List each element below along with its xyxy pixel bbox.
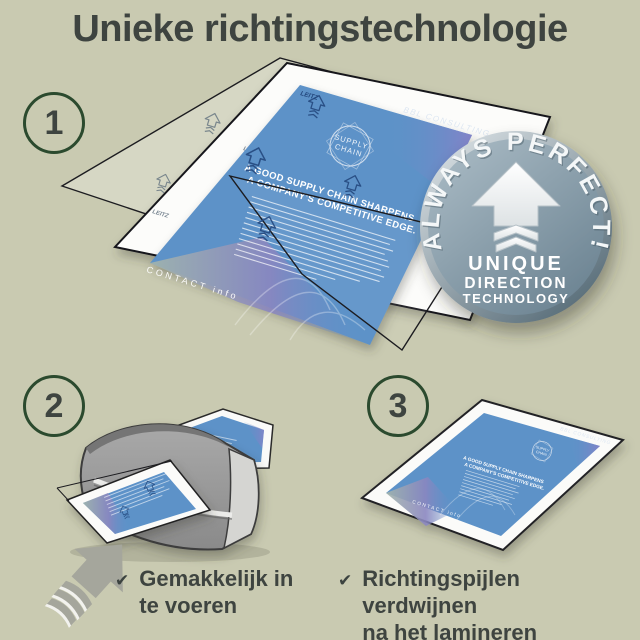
step-3-number: 3 <box>389 387 408 426</box>
caption-step2-line1: Gemakkelijk in <box>139 565 293 592</box>
step-2-circle: 2 <box>23 375 85 437</box>
checkmark-icon: ✔ <box>338 567 352 594</box>
step-3-circle: 3 <box>367 375 429 437</box>
caption-step2: ✔ Gemakkelijk in te voeren <box>115 565 335 619</box>
badge-line-1: UNIQUE <box>468 253 564 275</box>
caption-step2-line2: te voeren <box>139 592 293 619</box>
caption-step3-line1: Richtingspijlen verdwijnen <box>362 565 638 619</box>
caption-step3: ✔ Richtingspijlen verdwijnen na het lami… <box>338 565 638 640</box>
checkmark-icon: ✔ <box>115 567 129 594</box>
badge-line-3: TECHNOLOGY <box>463 291 570 306</box>
illustration-canvas: LEITZ LEITZ BBL CONSULTING SUPPLY <box>0 0 640 640</box>
caption-step3-line2: na het lamineren <box>362 619 638 640</box>
step-2-number: 2 <box>45 387 64 426</box>
step-1-number: 1 <box>45 104 64 143</box>
infographic-unique-direction-technology: Unieke richtingstechnologie <box>0 0 640 640</box>
badge-line-2: DIRECTION <box>464 275 567 292</box>
step-1-circle: 1 <box>23 92 85 154</box>
